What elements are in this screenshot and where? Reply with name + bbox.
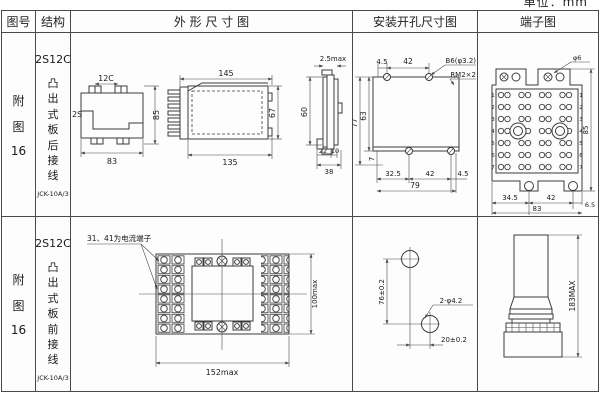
svg-text:2: 2	[491, 105, 495, 111]
spec-table: 图号 结构 外 形 尺 寸 图 安装开孔尺寸图 端子图 附 图 16 2S12C…	[1, 10, 599, 392]
label-rm2: RM2×2	[450, 71, 476, 79]
fig-number: 16	[11, 144, 26, 158]
mounting-dimensions: 76±0.2 2-φ4.2 20±0.2	[378, 259, 473, 345]
mounting-holes	[400, 247, 440, 349]
header-mounting: 安装开孔尺寸图	[353, 11, 478, 33]
fig-char: 图	[12, 297, 24, 314]
dim-63: 63	[359, 111, 368, 121]
side-view: 145 135 67	[168, 69, 282, 167]
dim-100max: 100max	[311, 280, 319, 309]
svg-text:7: 7	[491, 165, 495, 171]
dim-45-bottom: 4.5	[457, 170, 468, 178]
dim-2s: 2S	[72, 110, 82, 119]
dim-7: 7	[368, 157, 376, 161]
dim-42-top: 42	[403, 57, 413, 66]
row1-structure-cell: 2S12C 凸出式板后接线 JCK-10A/3	[36, 33, 71, 217]
dim-42-bottom: 42	[426, 170, 435, 178]
row1-terminal-cell: 1 2 3 4 5 6 7 1 2 3 4 5 6 7 φ6	[478, 33, 598, 217]
svg-text:6: 6	[579, 153, 583, 159]
dim-76: 76±0.2	[378, 279, 386, 305]
mounting-drawing-rear-wiring: 4.5 42 B6(φ3.2) RM2×2 63 77 7	[353, 33, 478, 217]
relay-side-view	[504, 235, 562, 357]
unit-note: 单位：mm	[524, 0, 588, 10]
svg-text:5: 5	[491, 141, 495, 147]
label-2phi42: 2-φ4.2	[440, 297, 463, 305]
structure-type-label: 凸出式板前接线	[47, 260, 60, 368]
dim-12c: 12C	[98, 74, 114, 83]
dim-83-terminal: 83	[533, 205, 542, 213]
dim-38: 38	[325, 168, 334, 176]
mounting-drawing-front-wiring: 76±0.2 2-φ4.2 20±0.2	[353, 217, 478, 391]
dim-79: 79	[410, 181, 420, 190]
row1-fig-cell: 附 图 16	[2, 33, 36, 217]
row2-outline-cell: 31、41为电流端子	[71, 217, 353, 391]
fig-number: 16	[11, 323, 26, 337]
dim-83: 83	[107, 157, 117, 166]
dim-42-terminal: 42	[547, 194, 556, 202]
outline-drawing-rear-wiring: 12C 2S 85 83	[71, 33, 353, 217]
svg-text:6: 6	[491, 153, 495, 159]
side-elevation-front-wiring: 183MAX	[478, 217, 598, 391]
label-phi6: φ6	[573, 54, 581, 62]
row1-mounting-cell: 4.5 42 B6(φ3.2) RM2×2 63 77 7	[353, 33, 478, 217]
row1-outline-cell: 12C 2S 85 83	[71, 33, 353, 217]
dim-145: 145	[218, 69, 233, 78]
dim-183max: 183MAX	[568, 280, 577, 311]
height-dimension: 183MAX	[548, 235, 582, 357]
header-fig-no: 图号	[2, 11, 36, 33]
svg-text:5: 5	[579, 141, 583, 147]
dim-152max: 152max	[206, 368, 239, 377]
row2-fig-cell: 附 图 16	[2, 217, 36, 391]
svg-text:3: 3	[579, 117, 583, 123]
dim-85: 85	[152, 110, 161, 120]
dim-345: 34.5	[502, 194, 518, 202]
dim-60: 60	[300, 107, 309, 117]
structure-type-label: 凸出式板后接线	[47, 76, 60, 184]
front-wiring-plate	[139, 239, 307, 350]
relay-code-label: JCK-10A/3	[37, 374, 68, 382]
svg-text:1: 1	[491, 93, 495, 99]
outline-drawing-front-wiring: 31、41为电流端子	[71, 217, 353, 391]
header-terminal: 端子图	[478, 11, 598, 33]
note-text: 31、41为电流端子	[87, 233, 152, 243]
row2-terminal-cell: 183MAX	[478, 217, 598, 391]
svg-text:3: 3	[491, 117, 495, 123]
header-structure: 结构	[36, 11, 71, 33]
relay-code-label: JCK-10A/3	[37, 190, 68, 198]
row2-mounting-cell: 76±0.2 2-φ4.2 20±0.2	[353, 217, 478, 391]
terminal-drawing-rear-wiring: 1 2 3 4 5 6 7 1 2 3 4 5 6 7 φ6	[478, 33, 598, 217]
dim-135: 135	[222, 158, 237, 167]
header-outline: 外 形 尺 寸 图	[71, 11, 353, 33]
dim-10: 10	[331, 147, 339, 155]
dim-20: 20±0.2	[441, 336, 467, 344]
dim-25max: 2.5max	[320, 55, 346, 63]
current-terminal-note: 31、41为电流端子	[87, 233, 159, 289]
svg-text:2: 2	[579, 105, 583, 111]
label-b6: B6(φ3.2)	[446, 57, 477, 65]
dim-325: 32.5	[385, 170, 401, 178]
svg-text:4: 4	[491, 129, 495, 135]
dim-22: 22	[319, 147, 327, 155]
svg-text:7: 7	[579, 165, 583, 171]
fig-char: 图	[12, 118, 24, 135]
catalog-page: 单位：mm 图号 结构 外 形 尺 寸 图 安装开孔尺寸图 端子图 附 图 16…	[0, 0, 600, 400]
model-label: 2S12C	[36, 53, 71, 66]
dim-77: 77	[353, 118, 359, 128]
row2-structure-cell: 2S12C 凸出式板前接线 JCK-10A/3	[36, 217, 71, 391]
mounting-plate	[373, 74, 459, 155]
dim-67: 67	[268, 108, 277, 118]
fig-char: 附	[12, 271, 24, 288]
model-label: 2S12C	[36, 237, 71, 250]
svg-text:1: 1	[579, 93, 583, 99]
end-view: 2.5max 60 22 10 38	[300, 55, 346, 176]
front-view: 12C 2S 85 83	[72, 74, 161, 166]
fig-char: 附	[12, 92, 24, 109]
terminal-plate	[492, 69, 582, 191]
dim-65: 6.5	[585, 201, 595, 209]
dim-45-top: 4.5	[376, 58, 387, 66]
dim-85-terminal: 85	[582, 126, 590, 135]
